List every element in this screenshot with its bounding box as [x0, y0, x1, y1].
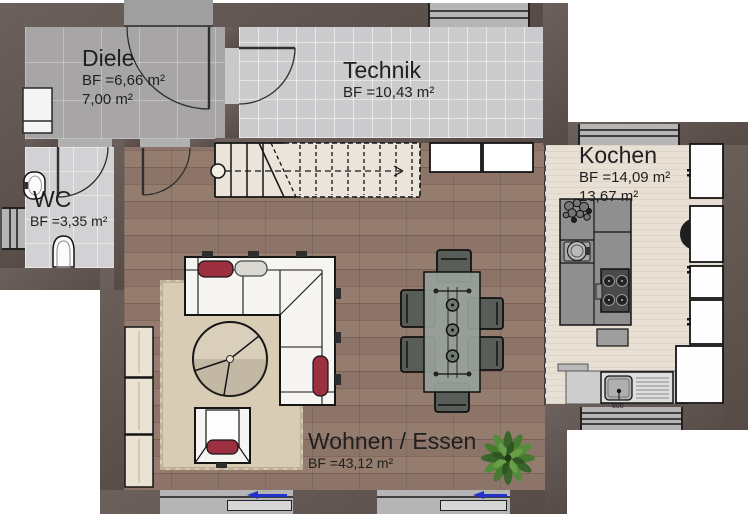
room-label-diele: Diele BF =6,66 m² 7,00 m² [82, 46, 165, 108]
staircase [215, 143, 420, 197]
wall-technik-right [543, 3, 568, 145]
room-area: BF =14,09 m² [579, 170, 670, 186]
hall-door-sill [140, 139, 190, 147]
wall-hall-right [190, 139, 215, 147]
room-label-wohnen-essen: Wohnen / Essen BF =43,12 m² [308, 429, 476, 471]
wc-door-sill [58, 139, 112, 147]
window-living-right [377, 490, 510, 514]
wall-diele-technik-b [225, 104, 239, 139]
sink-dimension-label: 600 [612, 403, 624, 410]
window-technik-top [428, 3, 530, 27]
room-name: WC [33, 187, 107, 211]
wall-left-lower [100, 268, 124, 514]
wall-diele-technik-a [225, 27, 239, 48]
wall-wc-right [114, 139, 124, 290]
rug [160, 280, 303, 470]
room-area: BF =43,12 m² [308, 456, 476, 471]
wall-wc-top [25, 139, 58, 147]
room-area: 13,67 m² [579, 189, 670, 205]
room-area: BF =3,35 m² [30, 214, 107, 229]
room-label-technik: Technik BF =10,43 m² [343, 58, 434, 101]
window-wc [2, 207, 25, 250]
room-name: Diele [82, 46, 165, 70]
floor-plan-canvas: Diele BF =6,66 m² 7,00 m² Technik BF =10… [0, 0, 750, 519]
room-name: Wohnen / Essen [308, 429, 476, 453]
wall-right [722, 122, 748, 430]
wall-technik-bottom [215, 138, 543, 143]
room-area: BF =6,66 m² [82, 73, 165, 89]
room-name: Kochen [579, 143, 670, 167]
room-boundary-dashed [544, 145, 546, 404]
room-area: BF =10,43 m² [343, 85, 434, 101]
room-name: Technik [343, 58, 434, 82]
technik-door-sill [225, 48, 239, 104]
room-label-kochen: Kochen BF =14,09 m² 13,67 m² [579, 143, 670, 205]
window-living-left [160, 490, 293, 514]
window-kochen-bottom [580, 407, 683, 430]
entrance-recess [124, 0, 213, 27]
room-area: 7,00 m² [82, 92, 165, 108]
slide-arrow-icon [247, 491, 287, 499]
room-label-wc: WC BF =3,35 m² [30, 187, 107, 229]
slide-arrow-icon [473, 491, 507, 499]
